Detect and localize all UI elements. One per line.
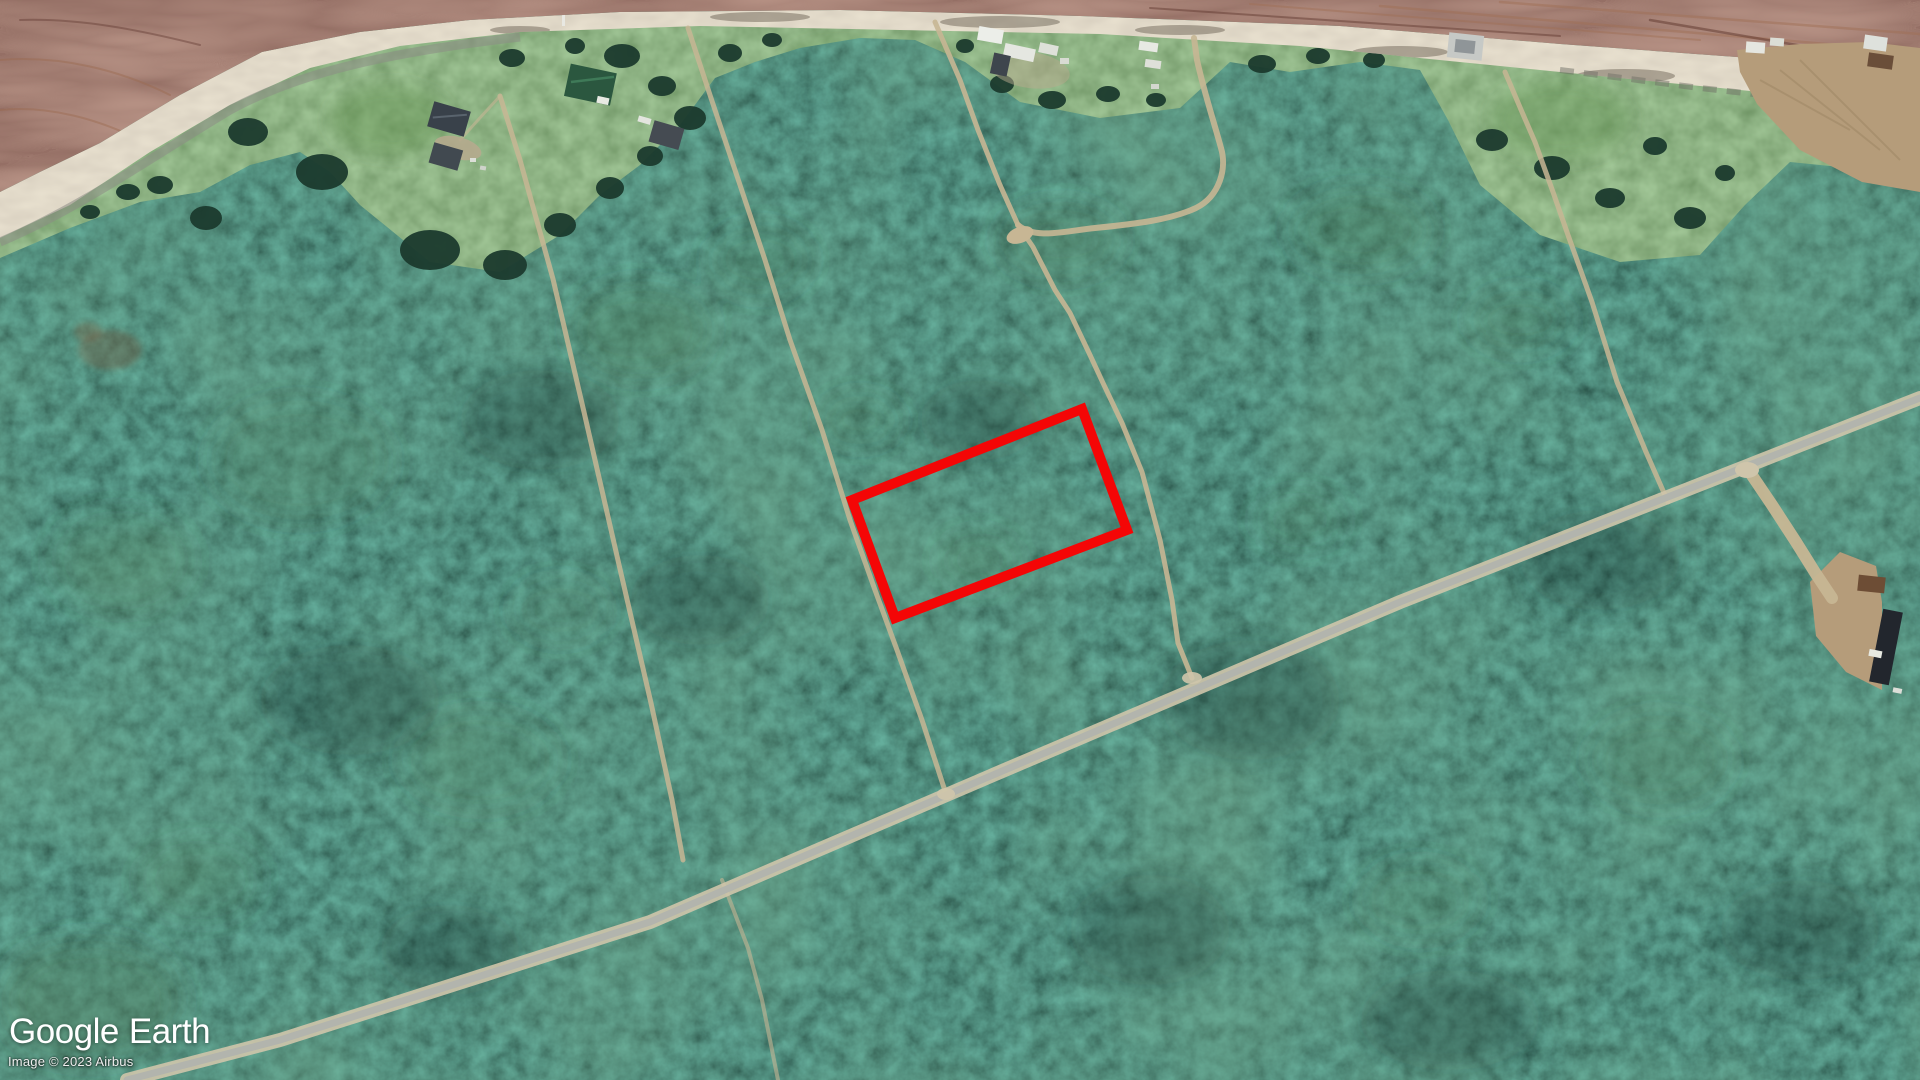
logo-earth-text: Earth — [129, 1012, 210, 1051]
logo-google-text: Google — [9, 1012, 119, 1051]
building-house-east — [1447, 32, 1484, 61]
google-earth-logo: GoogleEarth — [9, 1012, 210, 1052]
satellite-map[interactable] — [0, 0, 1920, 1080]
beach-pole — [562, 14, 565, 26]
google-earth-viewport: GoogleEarth Image © 2023 Airbus — [0, 0, 1920, 1080]
imagery-attribution: Image © 2023 Airbus — [8, 1054, 133, 1069]
satellite-imagery — [0, 0, 1920, 1080]
